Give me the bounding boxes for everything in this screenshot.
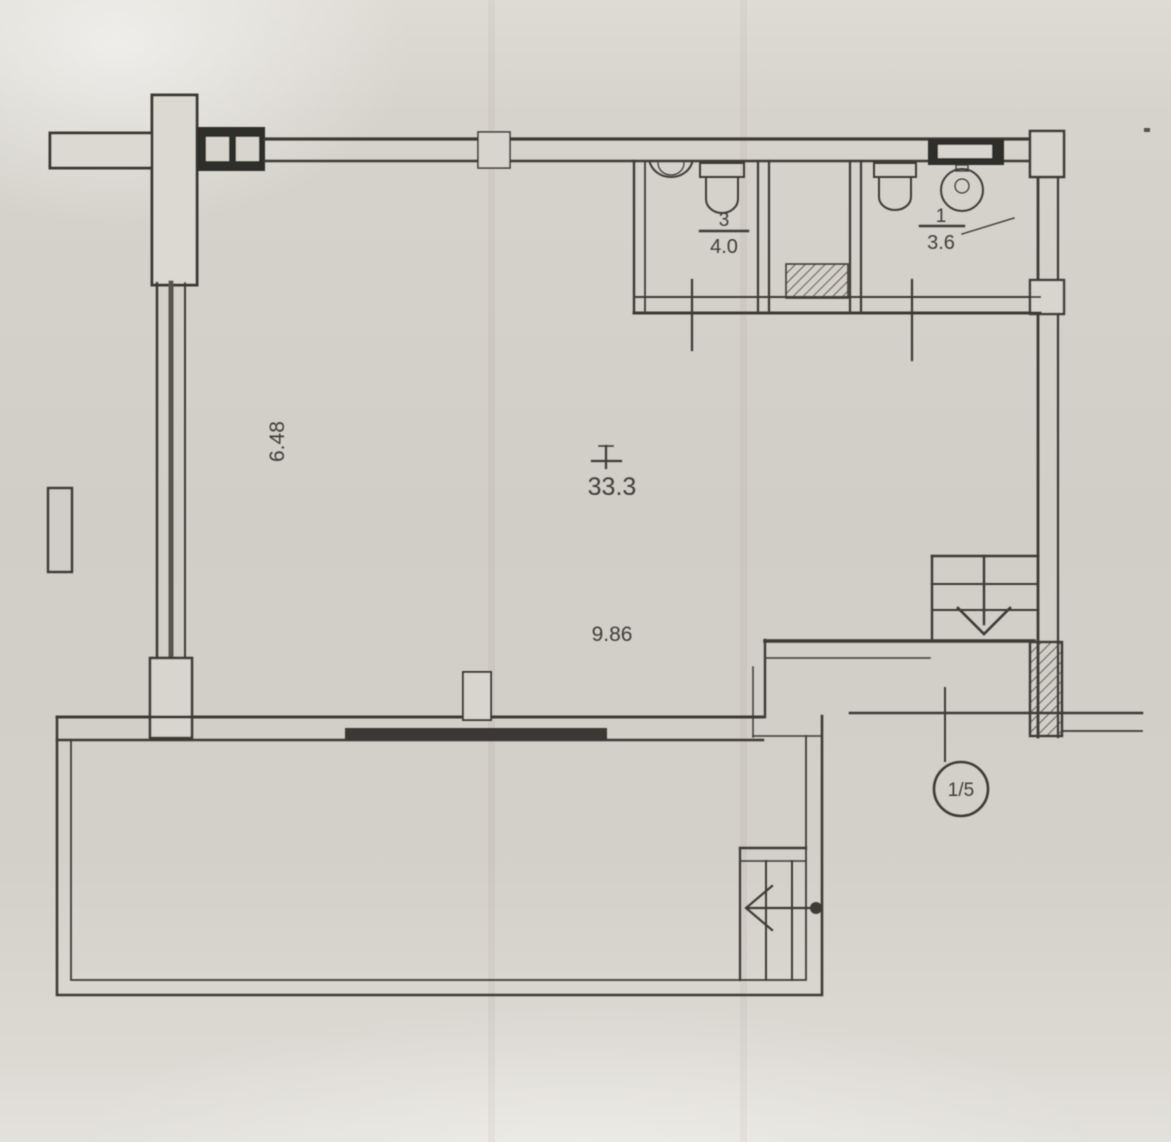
- room-label-fraction: 1 3.6: [920, 206, 1014, 254]
- bathroom-right: 1 3.6: [874, 139, 1014, 254]
- bottom-wall: [57, 672, 1142, 740]
- room-area: 4.0: [710, 236, 738, 258]
- room-number: 1: [936, 206, 947, 227]
- main-room-label: 33.3: [588, 446, 637, 501]
- balcony-stairs: [740, 848, 822, 980]
- scan-speck: [1144, 128, 1150, 132]
- shaft-block: [197, 127, 265, 171]
- leader-line: [962, 218, 1014, 234]
- stair-start-dot: [810, 902, 822, 914]
- corner-column: [1030, 131, 1064, 177]
- window-mullion: [463, 672, 491, 720]
- counter-block: [928, 139, 1004, 165]
- pier-bottom-left: [150, 658, 192, 738]
- dimension-horizontal: 9.86: [592, 623, 633, 646]
- bathroom-left: 3 4.0: [650, 163, 748, 258]
- hatched-duct: [786, 264, 848, 298]
- pier-top-left: [50, 95, 197, 285]
- right-wall: [1030, 131, 1064, 737]
- window-mullion: [478, 132, 510, 168]
- room-label-fraction: 3 4.0: [700, 210, 748, 258]
- top-wall: [265, 132, 1040, 168]
- detached-pier: [48, 488, 72, 572]
- bathroom-walls: [634, 161, 1040, 360]
- balcony: [57, 716, 822, 995]
- section-marker-label: 1/5: [948, 780, 974, 801]
- scanned-paper-background: 3 4.0: [0, 0, 1171, 1142]
- entry-stairs: [932, 556, 1038, 641]
- room-area: 3.6: [927, 232, 955, 254]
- entry-corridor: [753, 640, 1034, 737]
- toilet-icon: [700, 163, 744, 213]
- toilet-icon: [874, 163, 916, 210]
- dimension-vertical: 6.48: [266, 421, 289, 462]
- left-wall: [157, 283, 185, 662]
- washbasin-icon: [658, 163, 684, 175]
- ceiling-fixture-icon: [592, 446, 621, 468]
- room-number: 3: [719, 210, 730, 231]
- main-room-area: 33.3: [588, 473, 637, 501]
- hatched-column: [1030, 642, 1062, 736]
- section-marker: 1/5: [934, 688, 988, 816]
- window-sill: [345, 728, 607, 740]
- floor-plan-drawing: 3 4.0: [0, 0, 1171, 1142]
- round-sink-icon: [941, 165, 983, 211]
